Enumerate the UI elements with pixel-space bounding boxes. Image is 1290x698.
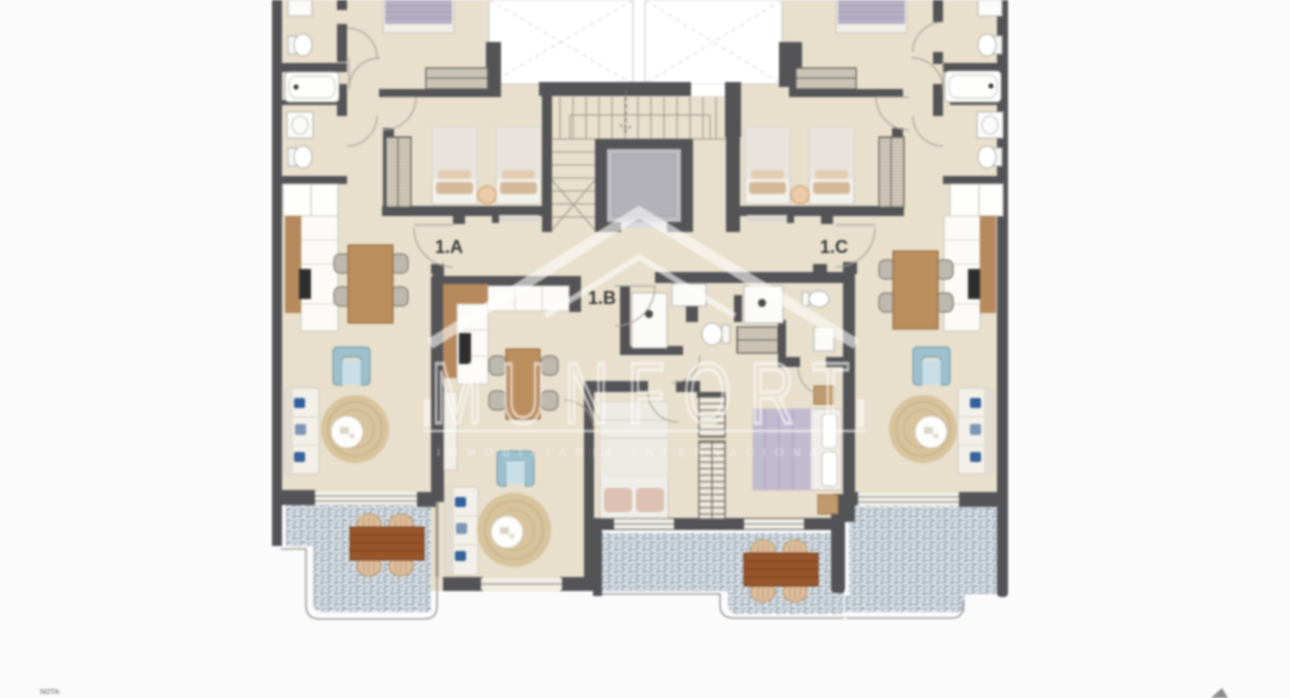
svg-text:MUNFORT: MUNFORT <box>431 345 868 441</box>
svg-text:1.C: 1.C <box>820 237 848 257</box>
svg-text:1.A: 1.A <box>435 237 463 257</box>
svg-text:1.B: 1.B <box>588 288 616 308</box>
svg-text:INMOBILIARIA INTERNACIONAL: INMOBILIARIA INTERNACIONAL <box>437 447 842 459</box>
svg-text:NOTA:: NOTA: <box>40 689 61 696</box>
